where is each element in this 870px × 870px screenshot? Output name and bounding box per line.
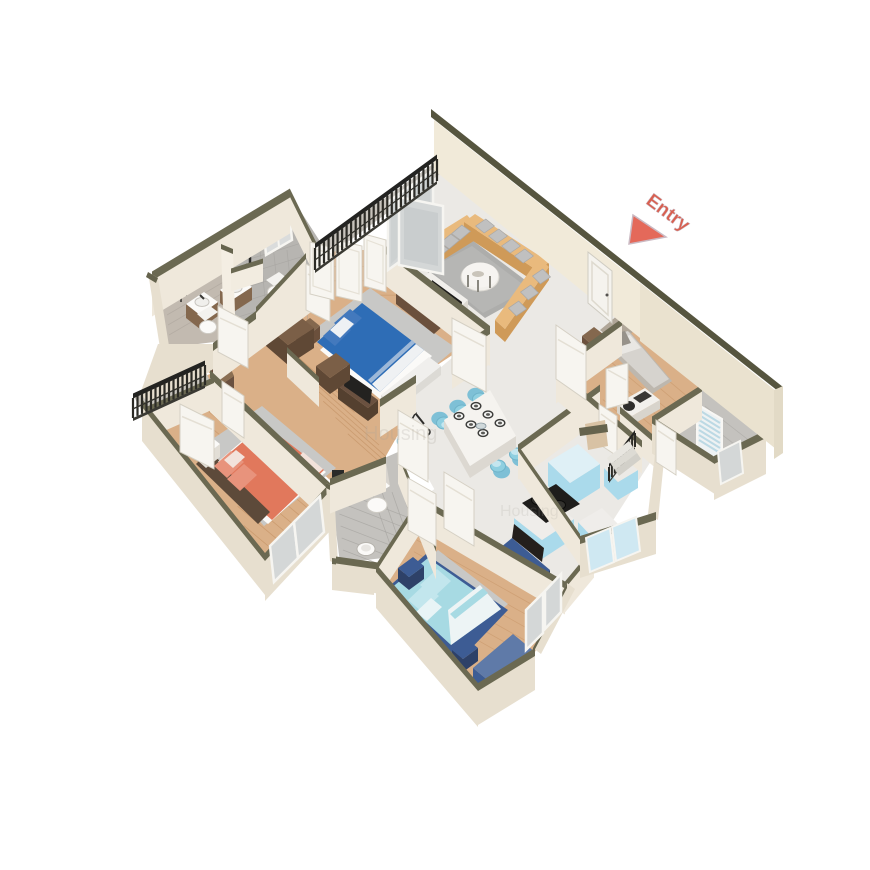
svg-text:Housing: Housing [500, 503, 559, 520]
svg-text:Housing: Housing [364, 423, 437, 445]
